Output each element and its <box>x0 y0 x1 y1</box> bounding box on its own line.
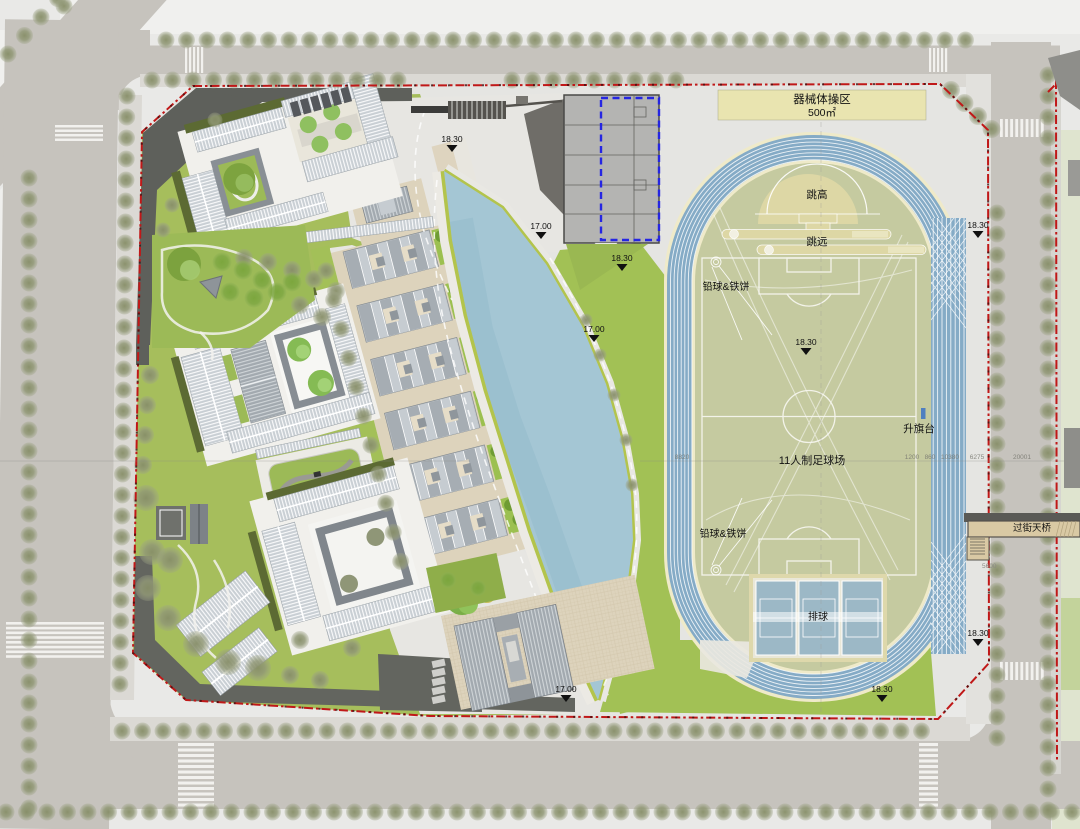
svg-text:8820: 8820 <box>675 454 690 461</box>
svg-text:铅球&铁饼: 铅球&铁饼 <box>700 527 747 540</box>
svg-text:5600: 5600 <box>982 563 997 570</box>
svg-text:11人制足球场: 11人制足球场 <box>779 453 845 467</box>
svg-text:18.30: 18.30 <box>967 220 989 230</box>
svg-text:器械体操区: 器械体操区 <box>793 92 851 106</box>
svg-text:18.30: 18.30 <box>611 253 633 263</box>
svg-text:跳高: 跳高 <box>807 188 828 201</box>
svg-text:升旗台: 升旗台 <box>903 422 935 435</box>
svg-text:1200: 1200 <box>905 454 920 461</box>
svg-text:排球: 排球 <box>808 610 828 623</box>
svg-text:500㎡: 500㎡ <box>808 107 837 119</box>
svg-text:20001: 20001 <box>1013 454 1031 461</box>
svg-text:18.30: 18.30 <box>967 628 989 638</box>
svg-text:18.30: 18.30 <box>795 337 817 347</box>
svg-text:17.00: 17.00 <box>555 684 577 694</box>
svg-text:18.30: 18.30 <box>441 134 463 144</box>
svg-text:10380: 10380 <box>941 454 959 461</box>
svg-text:6275: 6275 <box>970 454 985 461</box>
svg-text:过街天桥: 过街天桥 <box>1013 522 1052 534</box>
svg-text:跳远: 跳远 <box>807 235 828 248</box>
svg-text:17.00: 17.00 <box>530 221 552 231</box>
svg-text:铅球&铁饼: 铅球&铁饼 <box>703 280 750 293</box>
svg-text:860: 860 <box>925 454 936 461</box>
svg-text:17.00: 17.00 <box>583 324 605 334</box>
svg-text:18.30: 18.30 <box>871 684 893 694</box>
